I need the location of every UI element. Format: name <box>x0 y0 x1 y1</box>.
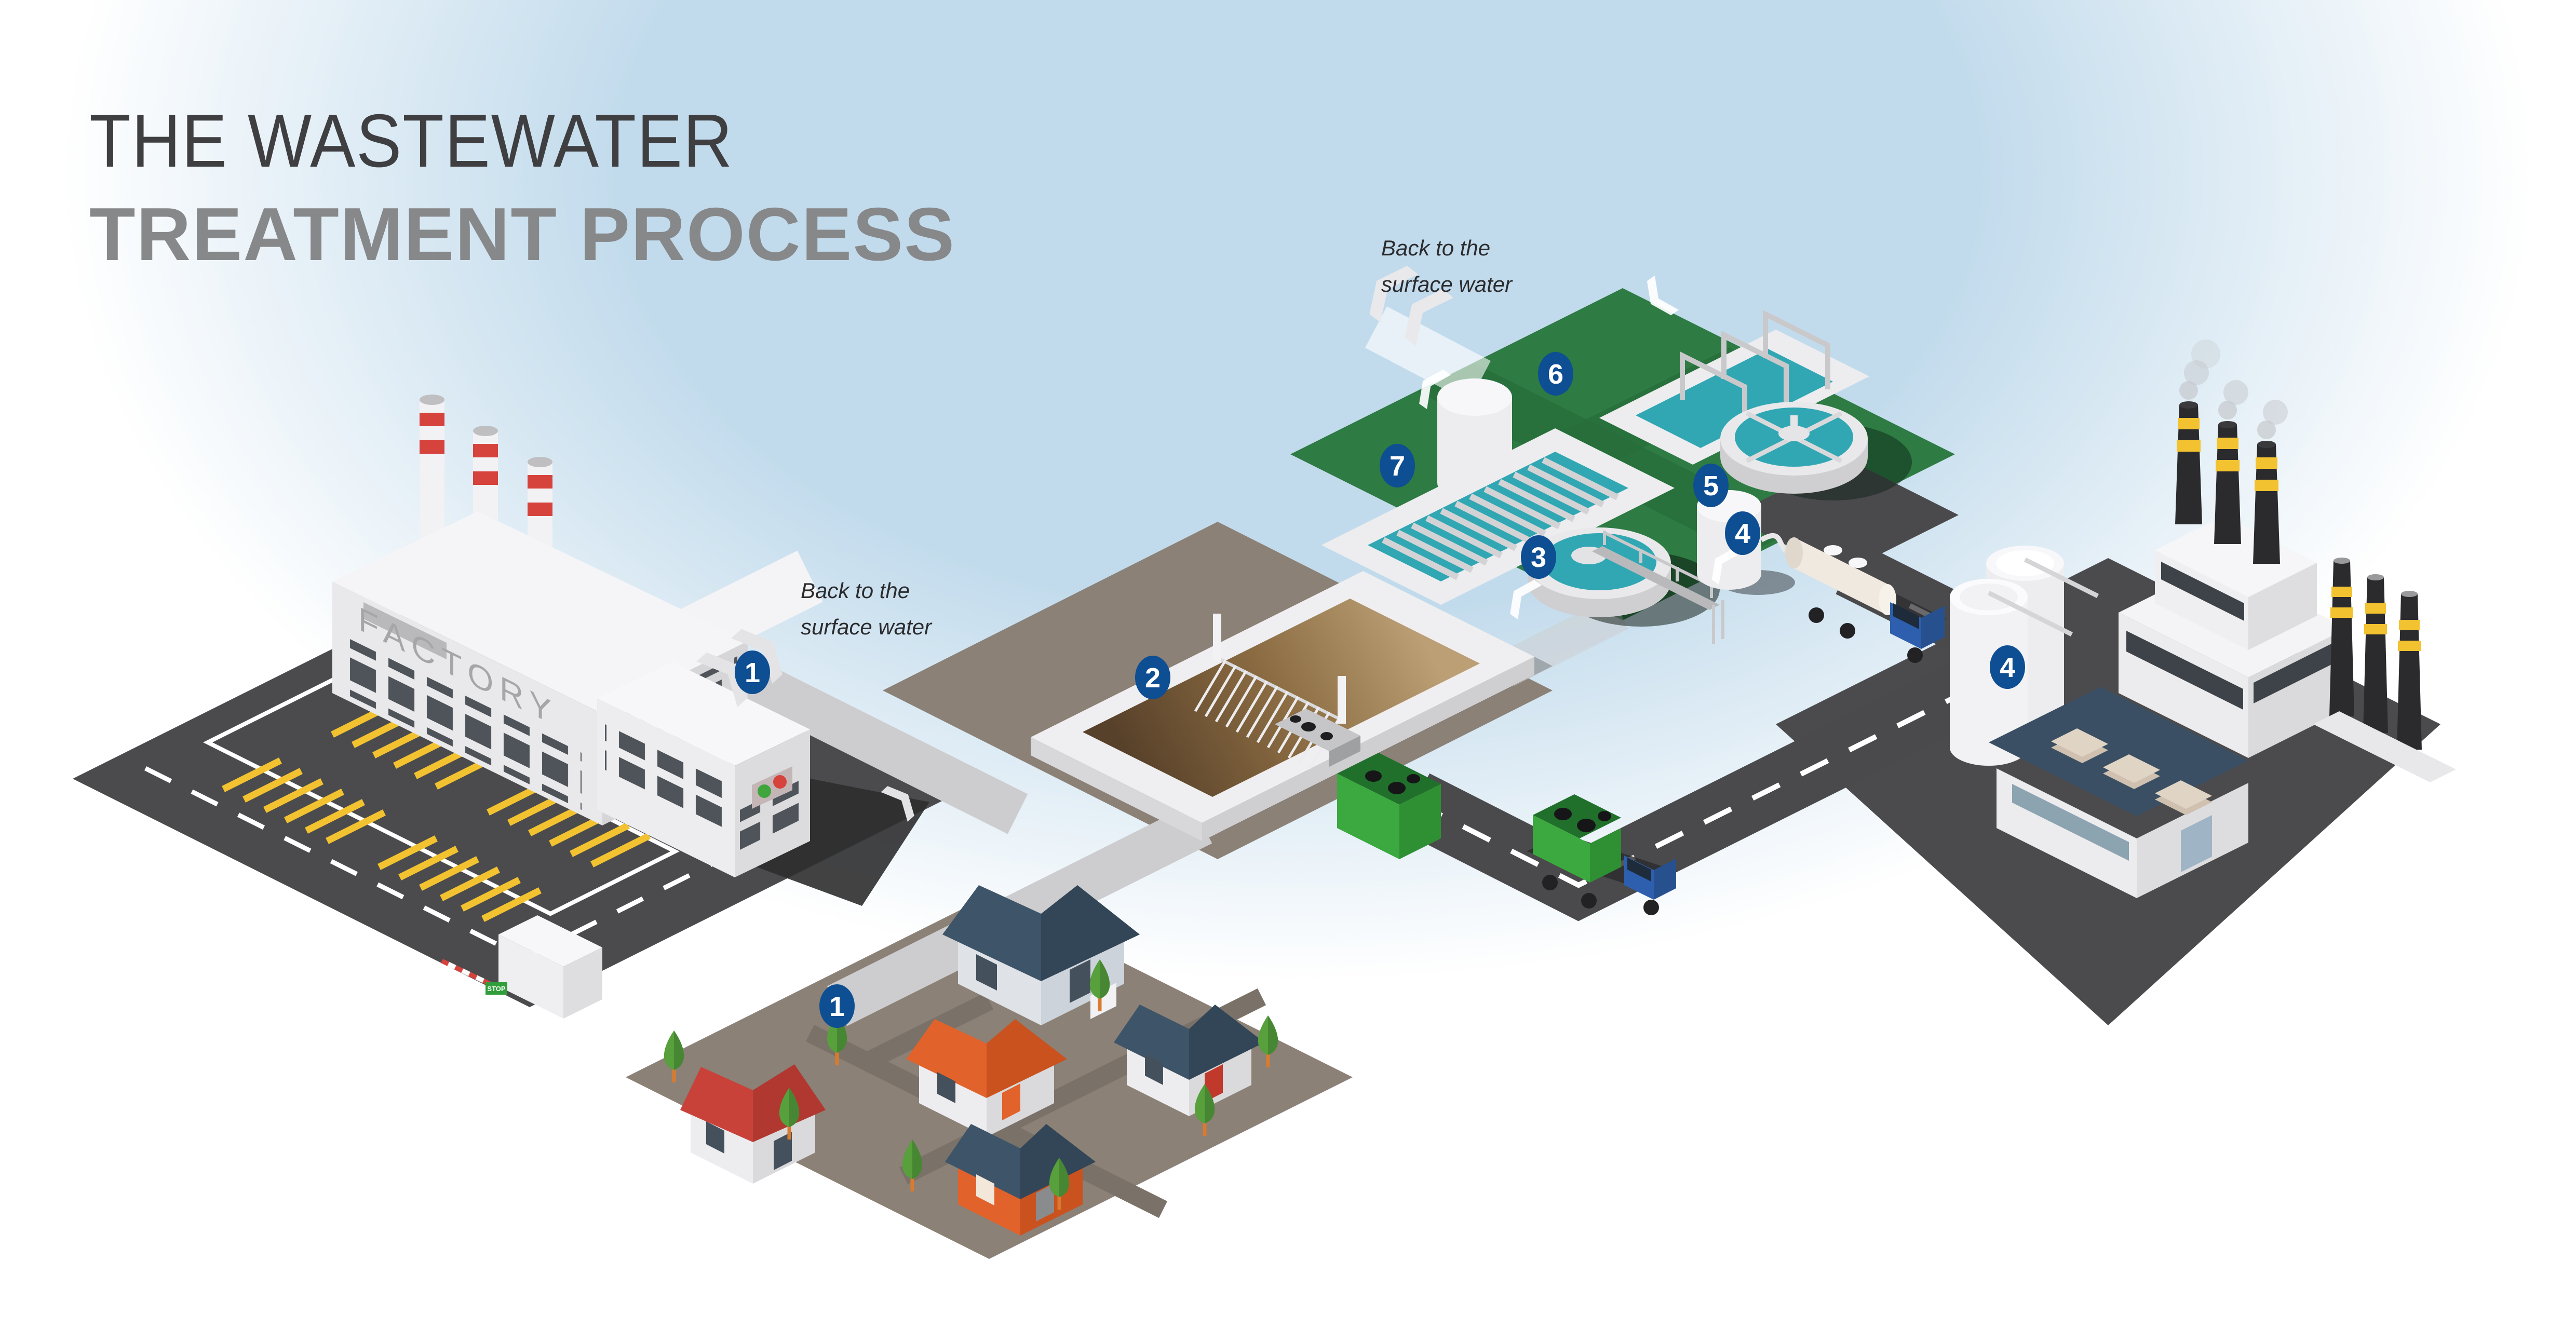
smoke-puff <box>2191 340 2220 369</box>
stop-sign: STOP <box>485 982 507 995</box>
badge-domestic-wastewater: 1 <box>819 984 855 1028</box>
svg-text:STOP: STOP <box>487 985 505 993</box>
svg-text:2: 2 <box>1145 662 1161 694</box>
badge-primary-clarifier: 3 <box>1521 535 1556 579</box>
annotation-line: Back to the <box>801 578 910 603</box>
badge-screening-basin: 2 <box>1135 656 1170 699</box>
truck-wheel <box>1581 893 1597 909</box>
badge-aeration-tank: 6 <box>1538 352 1573 396</box>
svg-text:7: 7 <box>1390 451 1405 482</box>
plant-chimney <box>2329 558 2354 716</box>
svg-text:4: 4 <box>2000 652 2015 683</box>
plant-chimney <box>2397 591 2422 750</box>
badge-filter-beds: 7 <box>1380 444 1415 487</box>
screen-post <box>1338 676 1346 724</box>
scene-svg: FACTORY STOP <box>0 0 2576 1342</box>
badge-sludge-processing-plant: 4 <box>1990 645 2025 689</box>
truck-wheel <box>1643 900 1659 915</box>
smoke-puff <box>2223 380 2248 405</box>
truck-wheel <box>1840 623 1855 639</box>
svg-text:5: 5 <box>1703 470 1719 501</box>
smoke-puff <box>2263 400 2288 425</box>
badge-secondary-clarifier: 5 <box>1693 464 1729 507</box>
badge-industrial-wastewater: 1 <box>735 650 770 694</box>
screen-post <box>1213 614 1221 661</box>
badge-sludge-storage-tank: 4 <box>1725 511 1760 555</box>
svg-text:1: 1 <box>745 657 760 688</box>
infographic-canvas: FACTORY STOP <box>0 0 2576 1342</box>
truck-wheel <box>1907 647 1923 663</box>
page-title-line1: THE WASTEWATER <box>89 99 733 183</box>
truck-wheel <box>1542 875 1558 890</box>
svg-text:6: 6 <box>1548 359 1563 390</box>
annotation-line: surface water <box>1381 272 1513 296</box>
svg-text:4: 4 <box>1735 518 1750 549</box>
page-title-line2: TREATMENT PROCESS <box>89 192 955 276</box>
svg-text:1: 1 <box>829 991 845 1022</box>
plant-chimney <box>2363 574 2388 733</box>
annotation-line: surface water <box>801 615 933 639</box>
svg-text:3: 3 <box>1531 542 1546 573</box>
truck-wheel <box>1809 607 1824 623</box>
annotation-line: Back to the <box>1381 236 1490 260</box>
